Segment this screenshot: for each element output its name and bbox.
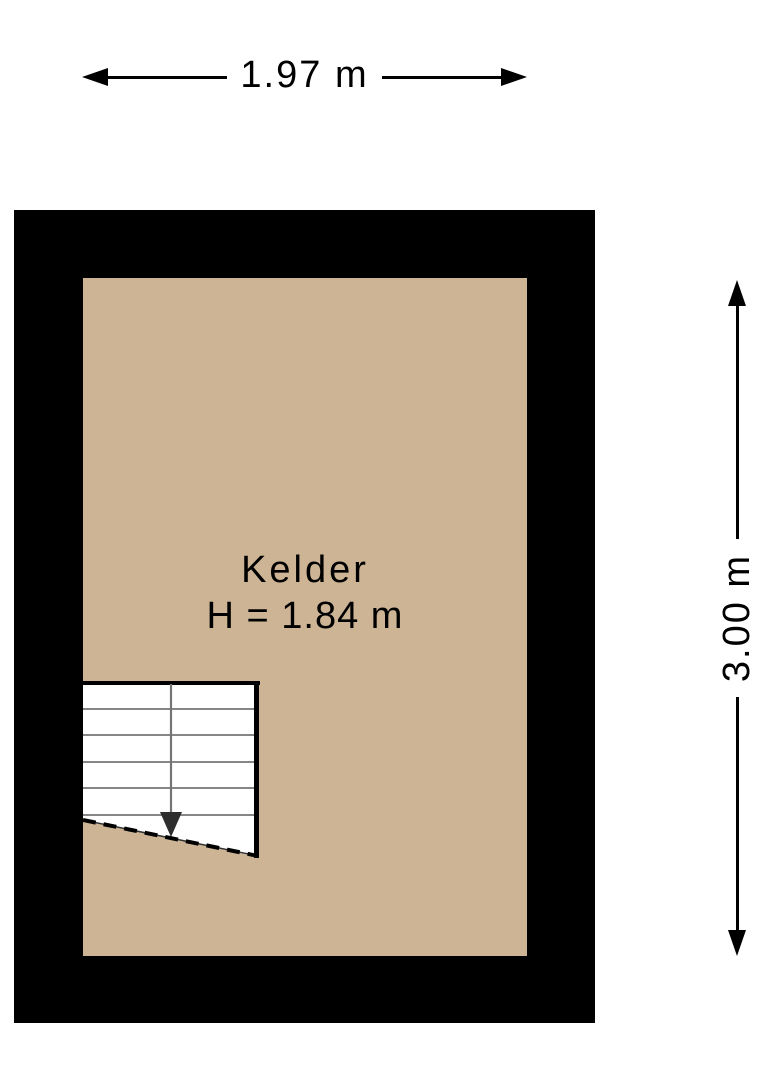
height-dimension-label: 3.00 m: [718, 554, 756, 682]
dimension-line: [382, 76, 501, 79]
staircase: [83, 680, 260, 860]
room-label: Kelder H = 1.84 m: [83, 547, 527, 639]
room-name: Kelder: [83, 547, 527, 593]
floor-plan: 1.97 m 3.00 m Kelder H = 1.84 m: [0, 0, 768, 1086]
width-dimension-label: 1.97 m: [227, 56, 381, 94]
dimension-line: [736, 306, 739, 539]
dimension-line: [108, 76, 227, 79]
arrow-left-icon: [82, 68, 108, 86]
height-dimension: 3.00 m: [717, 280, 757, 956]
height-dimension-label-box: 3.00 m: [717, 539, 757, 697]
arrow-up-icon: [728, 280, 746, 306]
width-dimension: 1.97 m: [82, 58, 527, 96]
dimension-line: [736, 697, 739, 930]
arrow-right-icon: [501, 68, 527, 86]
arrow-down-icon: [728, 930, 746, 956]
room-height-label: H = 1.84 m: [83, 593, 527, 639]
